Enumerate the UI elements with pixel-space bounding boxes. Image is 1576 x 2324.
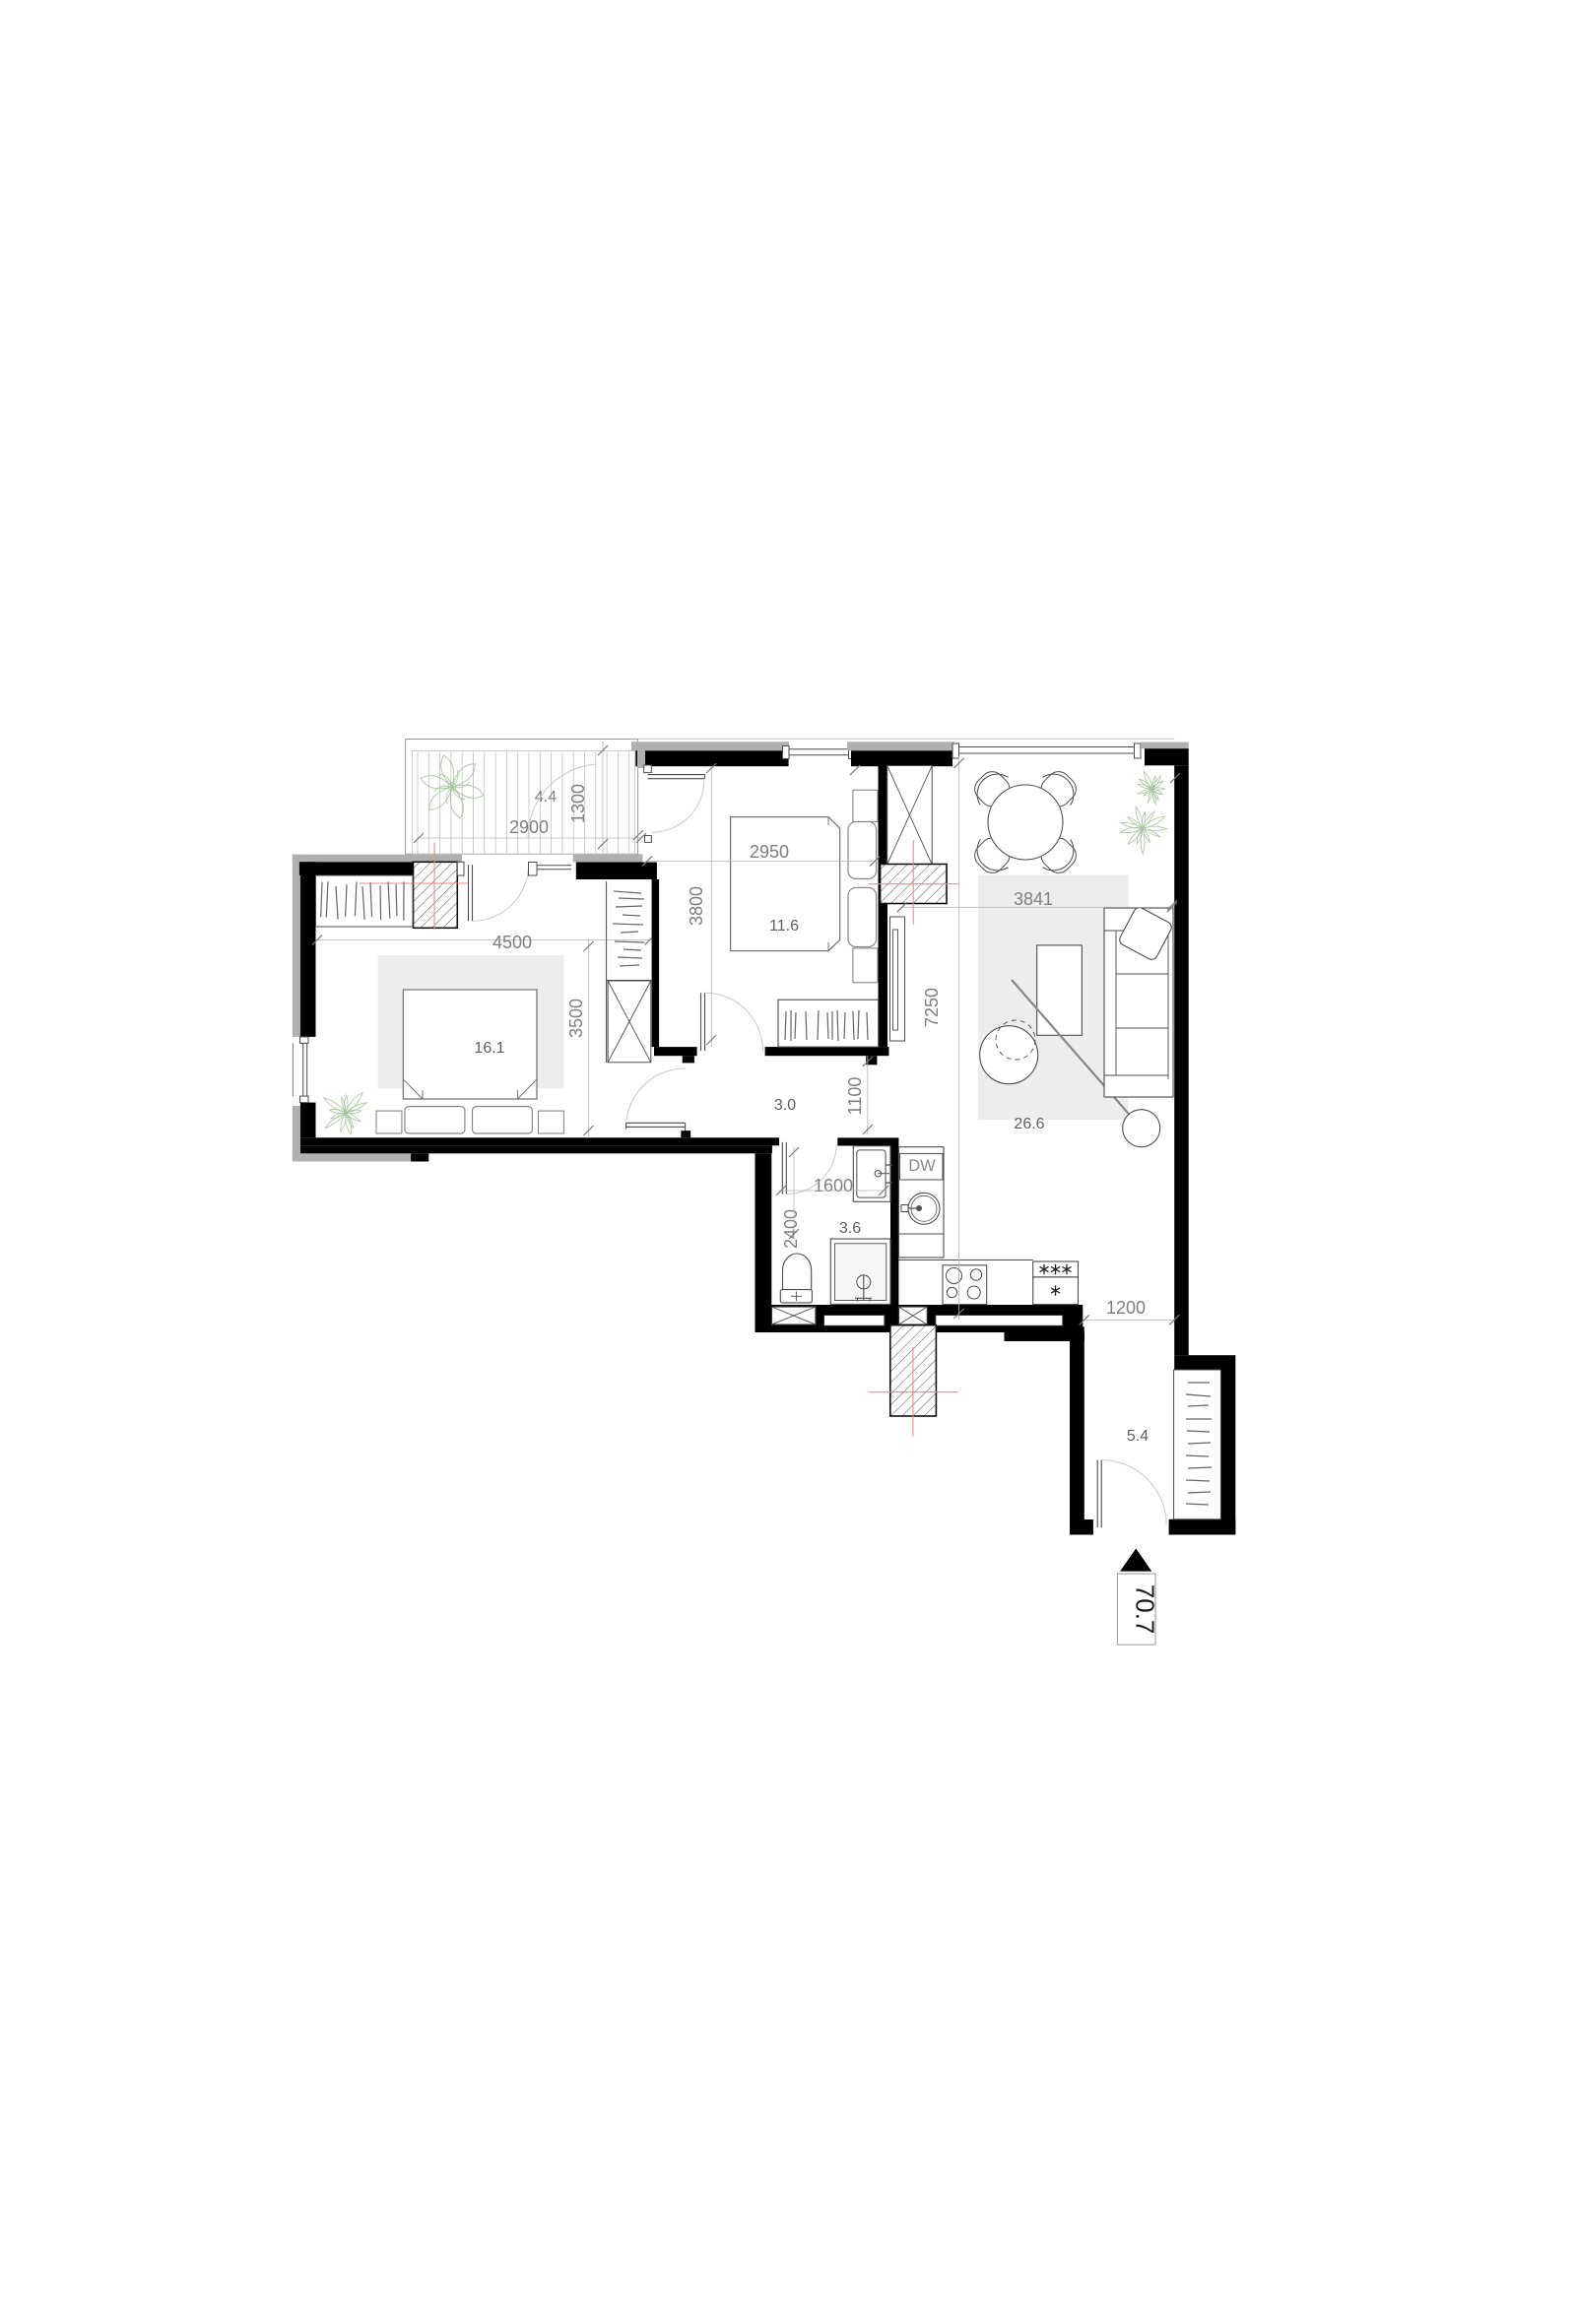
svg-text:1600: 1600 [814,1176,853,1195]
svg-text:5.4: 5.4 [1127,1428,1149,1445]
svg-text:1300: 1300 [568,784,588,823]
svg-text:3.0: 3.0 [774,1097,796,1114]
svg-text:3800: 3800 [687,886,706,926]
svg-text:3500: 3500 [566,999,586,1038]
svg-text:1100: 1100 [845,1077,865,1116]
svg-text:7250: 7250 [922,988,942,1027]
svg-text:2400: 2400 [781,1209,801,1249]
svg-text:3841: 3841 [1014,889,1053,909]
svg-text:11.6: 11.6 [769,918,799,935]
svg-text:3.6: 3.6 [839,1220,861,1237]
svg-text:70.7: 70.7 [1131,1584,1160,1635]
svg-text:26.6: 26.6 [1014,1116,1044,1132]
svg-text:DW: DW [908,1157,936,1175]
svg-text:1200: 1200 [1106,1298,1146,1318]
svg-text:2950: 2950 [750,842,789,862]
svg-text:16.1: 16.1 [474,1040,504,1057]
svg-text:4500: 4500 [492,933,532,952]
svg-text:4.4: 4.4 [535,789,557,806]
